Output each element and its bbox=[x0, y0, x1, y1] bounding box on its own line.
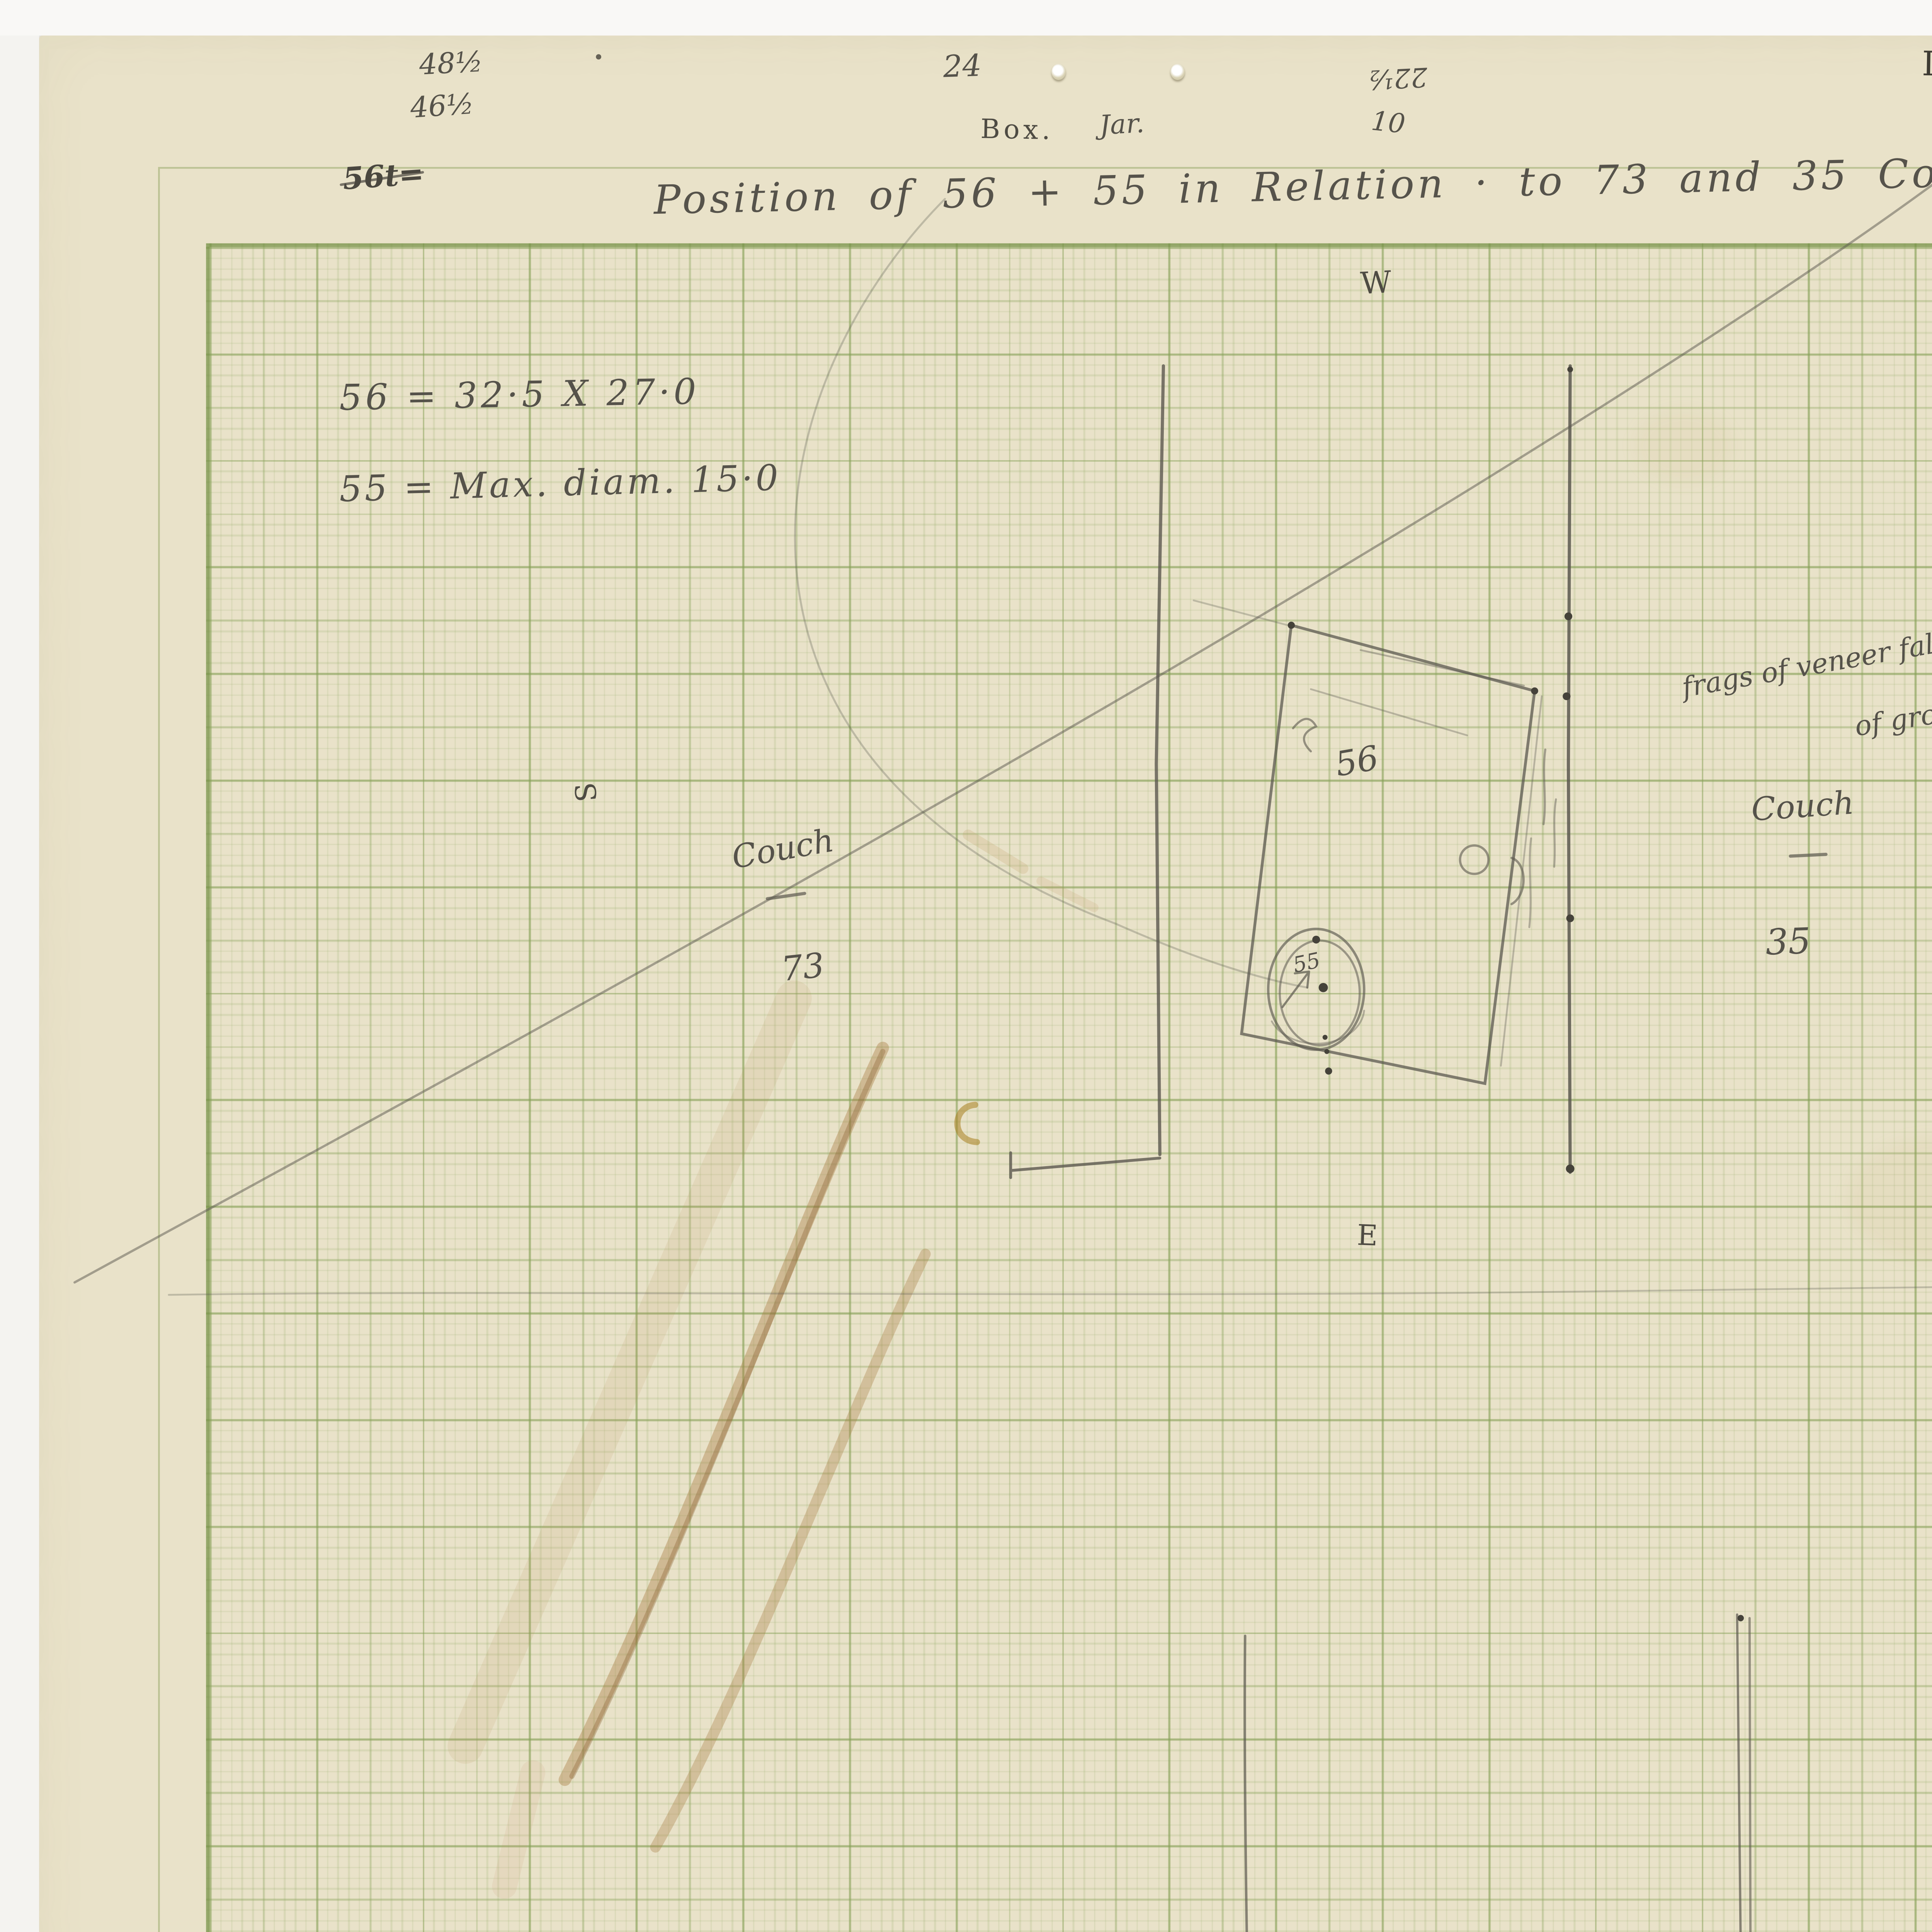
couch73-number: 73 bbox=[780, 950, 826, 988]
horizontal-pencil-line bbox=[169, 1284, 1932, 1295]
scanned-sheet-viewport: 48½ 46½ 24 Box. Jar. 22½ 10 I.G. 18 56t=… bbox=[0, 0, 1932, 1932]
top-left-measurement-2: 46½ bbox=[409, 90, 475, 123]
top-center-number: 24 bbox=[943, 53, 982, 84]
lower-plan-right-wall-double bbox=[1750, 1618, 1752, 1932]
small-circle-mark bbox=[1460, 845, 1489, 874]
box56-corner-lead bbox=[1194, 600, 1288, 625]
sweeping-arc-pencil-line bbox=[795, 199, 1307, 988]
box-label: Box. bbox=[980, 117, 1054, 145]
crossed-out-scribble: 56t= bbox=[342, 161, 425, 197]
top-right-measurement-2: 10 bbox=[1370, 109, 1406, 139]
veneer-hatch bbox=[1554, 799, 1556, 867]
box56-inner-line bbox=[1311, 689, 1467, 736]
wall-line-west bbox=[1156, 366, 1163, 1155]
survey-dots bbox=[596, 54, 1753, 1932]
veneer-hatch bbox=[1529, 838, 1531, 927]
object55-number: 55 bbox=[1291, 949, 1322, 976]
top-right-measurement-1: 22½ bbox=[1367, 62, 1428, 92]
object56-number: 56 bbox=[1333, 743, 1381, 783]
compass-west-label: W bbox=[1360, 269, 1392, 301]
compass-south-label: S bbox=[572, 781, 602, 803]
wall-line-west-foot bbox=[1011, 1153, 1160, 1177]
couch73-remains-smudges bbox=[465, 835, 1094, 1886]
couch35-underline bbox=[1791, 854, 1826, 856]
plan-drawing-svg bbox=[0, 0, 1932, 1932]
long-diagonal-pencil-line bbox=[75, 60, 1932, 1282]
jar-label: Jar. bbox=[1099, 111, 1145, 140]
box56-inner-line bbox=[1361, 650, 1524, 685]
top-left-measurement-1: 48½ bbox=[418, 48, 484, 80]
jar55-outer-circle bbox=[1268, 929, 1364, 1050]
lower-plan-left-wall bbox=[1245, 1636, 1254, 1932]
couch35-number: 35 bbox=[1765, 923, 1811, 960]
box56-outline bbox=[1242, 625, 1534, 1083]
veneer-hatch bbox=[1544, 750, 1546, 824]
couch35-label: Couch bbox=[1750, 789, 1855, 828]
lower-plan-right-wall bbox=[1737, 1614, 1744, 1932]
compass-east-label: E bbox=[1357, 1222, 1378, 1251]
box56-edge-double bbox=[1501, 696, 1542, 1066]
measurement-object56: 56 = 32·5 X 27·0 bbox=[339, 373, 700, 415]
sheet-reference: I.G. 18 bbox=[1922, 49, 1932, 85]
wall-line-east bbox=[1568, 366, 1570, 1172]
box56-hook-mark bbox=[1293, 719, 1316, 751]
measurement-object55: 55 = Max. diam. 15·0 bbox=[339, 459, 781, 507]
